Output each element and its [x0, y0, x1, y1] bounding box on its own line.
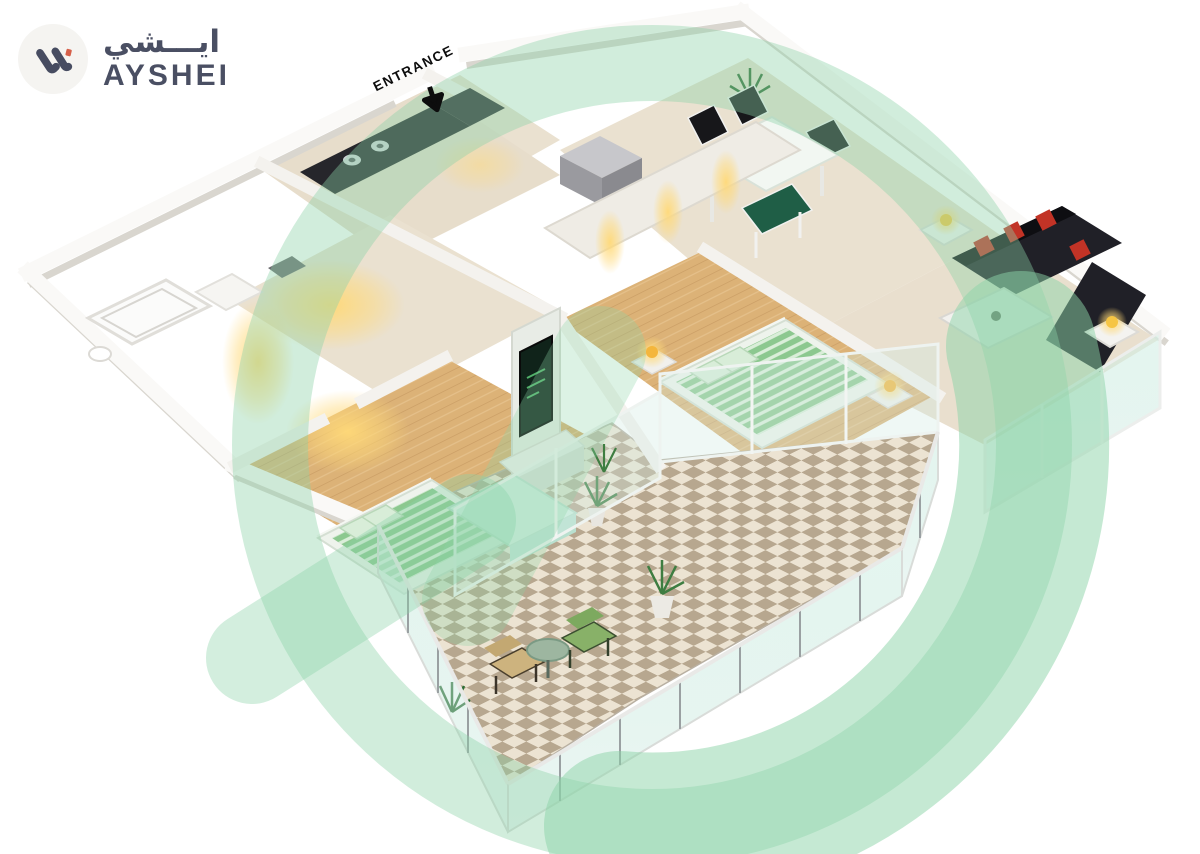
toilet: [89, 347, 111, 361]
logo-latin-text: AYSHEI: [103, 61, 230, 92]
table-lamp-left: [940, 214, 952, 226]
logo-badge: [18, 24, 88, 94]
logo-arabic-text: ايـــشي: [103, 27, 230, 59]
ayshei-logo-mark-icon: [30, 36, 76, 82]
floor-plan-illustration: [0, 0, 1200, 854]
corridor-glow: [222, 300, 294, 424]
balcony-round-table: [527, 639, 569, 661]
bathtub: [88, 280, 210, 344]
ayshei-logo: ايـــشي AYSHEI: [18, 24, 230, 94]
coffee-table-item: [991, 311, 1001, 321]
entrance-glow: [435, 137, 525, 193]
table-lamp-right: [1106, 316, 1118, 328]
logo-text: ايـــشي AYSHEI: [103, 27, 230, 91]
nightstand-lamp-left: [646, 346, 658, 358]
tv: [520, 336, 552, 436]
floor-plan-page: ايـــشي AYSHEI ENTRANCE: [0, 0, 1200, 854]
